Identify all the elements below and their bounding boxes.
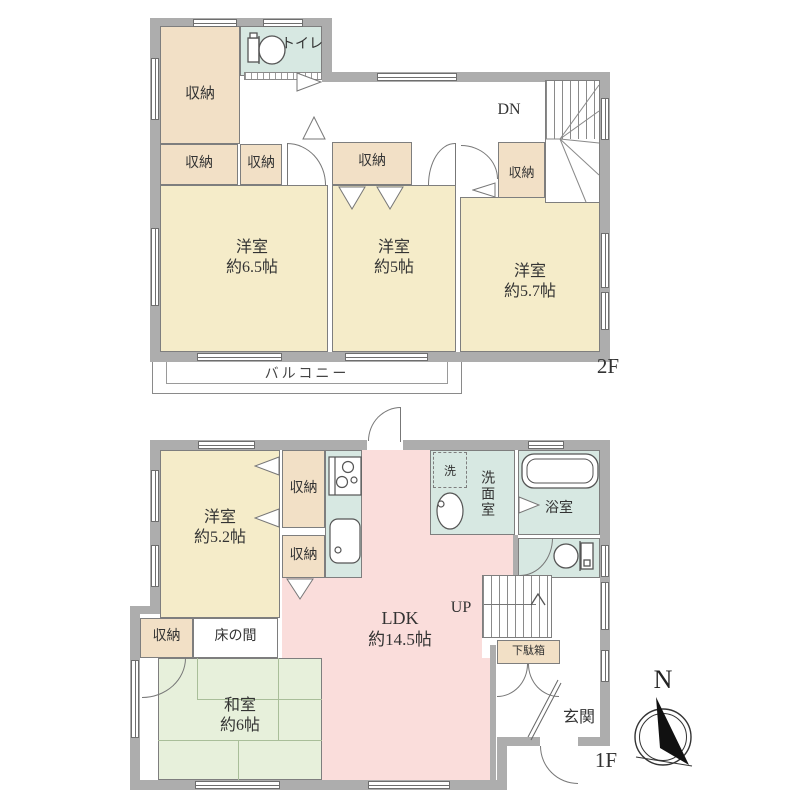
floor-label-2f: 2F bbox=[588, 354, 628, 380]
stair-direction-line bbox=[484, 604, 536, 605]
room-label: 洋室 約5.2帖 bbox=[170, 508, 270, 547]
ldk-area bbox=[322, 658, 490, 780]
wall-segment bbox=[130, 780, 507, 790]
door-arc bbox=[428, 143, 455, 185]
balcony-label: バルコニー bbox=[232, 366, 382, 383]
closet-label: 収納 bbox=[140, 628, 193, 645]
wall-segment bbox=[150, 440, 160, 614]
tatami-line bbox=[238, 740, 239, 780]
window bbox=[601, 98, 609, 140]
window bbox=[368, 781, 450, 789]
room-name: 和室 bbox=[190, 696, 290, 716]
window bbox=[377, 73, 457, 81]
tatami-line bbox=[197, 658, 198, 700]
door-swing-triangle bbox=[302, 116, 326, 140]
ldk-label: LDK 約14.5帖 bbox=[330, 608, 470, 651]
door-swing-triangle bbox=[338, 186, 366, 210]
door-arc bbox=[287, 143, 326, 185]
door-swing-triangle bbox=[296, 72, 322, 92]
window bbox=[601, 292, 609, 330]
ldk-area bbox=[362, 450, 430, 578]
closet-label: 収納 bbox=[498, 165, 545, 181]
genkan-label: 玄関 bbox=[556, 708, 602, 728]
bath-label: 浴室 bbox=[534, 500, 584, 517]
window bbox=[601, 582, 609, 630]
window bbox=[601, 545, 609, 577]
window bbox=[195, 781, 280, 789]
room-name: 洋室 bbox=[470, 262, 590, 282]
washer-space: 洗 bbox=[433, 452, 467, 488]
window bbox=[151, 58, 159, 120]
compass: N bbox=[618, 658, 710, 778]
tatami-line bbox=[158, 740, 322, 741]
room-label: 洋室 約5帖 bbox=[334, 238, 454, 277]
window bbox=[151, 228, 159, 306]
door-gap bbox=[367, 440, 403, 450]
compass-north-label: N bbox=[654, 665, 673, 694]
room-size: 約5.2帖 bbox=[170, 528, 270, 548]
bathtub-icon bbox=[521, 452, 599, 490]
window bbox=[263, 19, 303, 27]
washer-label: 洗 bbox=[444, 462, 456, 479]
room-size: 約5.7帖 bbox=[470, 282, 590, 302]
room-name: 洋室 bbox=[170, 508, 270, 528]
door-arc bbox=[461, 145, 498, 179]
closet-label: 収納 bbox=[165, 155, 233, 172]
door-swing-triangle bbox=[254, 456, 280, 476]
door-swing-triangle bbox=[286, 578, 314, 600]
closet-label: 収納 bbox=[166, 85, 234, 103]
toilet-label: トイレ bbox=[280, 36, 324, 53]
staircase-2f bbox=[545, 80, 600, 203]
compass-needle bbox=[656, 697, 689, 765]
window bbox=[197, 353, 282, 361]
entrance-door-arc bbox=[540, 746, 578, 784]
window bbox=[198, 441, 255, 449]
closet-label: 収納 bbox=[240, 155, 282, 172]
stairs-dn-label: DN bbox=[486, 100, 532, 120]
room-label: 和室 約6帖 bbox=[190, 696, 290, 735]
window bbox=[193, 19, 237, 27]
window bbox=[131, 660, 139, 738]
room-size: 約6.5帖 bbox=[192, 258, 312, 278]
room-size: 約5帖 bbox=[334, 258, 454, 278]
room-label: 洋室 約6.5帖 bbox=[192, 238, 312, 277]
wall-segment bbox=[490, 645, 496, 780]
window bbox=[151, 545, 159, 587]
ldk-area bbox=[430, 535, 513, 578]
floorplan-canvas: 収納 トイレ 収納 収納 収納 収納 DN 洋室 約6.5帖 洋室 約5帖 洋室… bbox=[0, 0, 800, 800]
toilet-icon bbox=[552, 540, 596, 572]
room-name: LDK bbox=[330, 608, 470, 630]
room-size: 約6帖 bbox=[190, 716, 290, 736]
window bbox=[528, 441, 564, 449]
closet-label: 収納 bbox=[282, 547, 325, 564]
room-name: 洋室 bbox=[192, 238, 312, 258]
closet-label: 収納 bbox=[337, 153, 407, 170]
window bbox=[345, 353, 428, 361]
shoebox-label: 下駄箱 bbox=[497, 645, 560, 658]
door-swing-triangle bbox=[472, 182, 496, 198]
window bbox=[151, 470, 159, 522]
door-swing-triangle bbox=[376, 186, 404, 210]
tokonoma-label: 床の間 bbox=[193, 628, 278, 645]
door-arc bbox=[368, 407, 401, 441]
room-label: 洋室 約5.7帖 bbox=[470, 262, 590, 301]
stove-icon bbox=[328, 456, 362, 496]
vanity-sink-icon bbox=[433, 490, 469, 532]
washroom-label: 洗面室 bbox=[478, 458, 495, 530]
window bbox=[601, 233, 609, 288]
room-size: 約14.5帖 bbox=[330, 630, 470, 651]
room-name: 洋室 bbox=[334, 238, 454, 258]
door-leaf bbox=[455, 143, 456, 185]
staircase-1f bbox=[482, 575, 552, 638]
closet-label: 収納 bbox=[282, 480, 325, 497]
window bbox=[601, 650, 609, 682]
stair-direction-arrow bbox=[530, 592, 546, 606]
kitchen-sink-icon bbox=[328, 518, 362, 564]
stair-winder-lines bbox=[546, 81, 601, 204]
